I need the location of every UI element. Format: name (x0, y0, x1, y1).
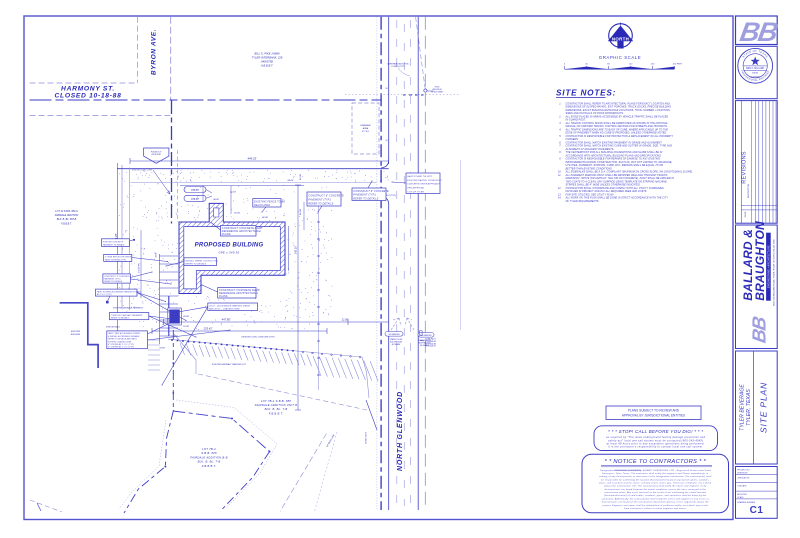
svg-text:UTILITIES, PAVEMENT, STRIPING,: UTILITIES, PAVEMENT, STRIPING, CURB, ETC… (566, 164, 664, 167)
svg-text:ALL WORK ON THIS PLAN SHALL BE: ALL WORK ON THIS PLAN SHALL BE DONE IN S… (565, 197, 669, 200)
svg-text:66.00′: 66.00′ (288, 180, 294, 182)
svg-text:FOR SITE UTILITIES, SEE UTILIT: FOR SITE UTILITIES, SEE UTILITY PLAN. (566, 193, 615, 196)
svg-text:CONTRACTOR SHALL MATCH EXISTIN: CONTRACTOR SHALL MATCH EXISTING PAVEMENT… (566, 141, 663, 144)
svg-text:16.00′: 16.00′ (234, 213, 240, 215)
svg-text:976.88′: 976.88′ (191, 189, 199, 192)
svg-text:CONTRACTOR SHALL REFER TO ARCH: CONTRACTOR SHALL REFER TO ARCHITECTURAL … (566, 102, 671, 105)
svg-text:11.: 11. (558, 174, 561, 177)
svg-text:CONSTRUCT 6″ CONCRETE: CONSTRUCT 6″ CONCRETE (104, 276, 130, 278)
svg-text:CONSTRUCT 6″ CONCRETE: CONSTRUCT 6″ CONCRETE (308, 194, 344, 197)
svg-text:CONTRACTOR IS RESPONSIBLE FOR: CONTRACTOR IS RESPONSIBLE FOR PROTECTION… (566, 135, 674, 138)
svg-text:REFER TO DETAILS: REFER TO DETAILS (308, 203, 333, 206)
svg-text:3.: 3. (559, 122, 561, 125)
svg-text:PLANS: PLANS (219, 295, 228, 298)
svg-text:REFER TO DETAILS: REFER TO DETAILS (353, 197, 378, 200)
svg-text:REFERENCE ARCHITECTURAL: REFERENCE ARCHITECTURAL (219, 292, 259, 295)
svg-text:IN GUARD POST.: IN GUARD POST. (566, 119, 587, 122)
svg-text:TYLER BEVERAGE: TYLER BEVERAGE (740, 384, 746, 431)
svg-text:BYRON AVE.: BYRON AVE. (151, 29, 158, 75)
svg-text:14.: 14. (558, 197, 562, 200)
svg-text:FL 8″=530.11: FL 8″=530.11 (425, 346, 436, 348)
svg-text:CONSTRUCT CONCRETE RAMP: CONSTRUCT CONCRETE RAMP (222, 227, 263, 230)
svg-text:CITY OF TYLER: CITY OF TYLER (407, 191, 424, 193)
svg-text:STRIPES SHALL BE 4″ WIDE UNLES: STRIPES SHALL BE 4″ WIDE UNLESS OTHERWIS… (566, 184, 641, 187)
svg-text:15.08′: 15.08′ (183, 326, 189, 328)
svg-text:ACCORDANCE WITH ARCHITECTURAL: ACCORDANCE WITH ARCHITECTURAL BUILDING P… (565, 154, 662, 157)
svg-text:INVOLVED IN PROJECT AND PAY AL: INVOLVED IN PROJECT AND PAY ALL REQUIRED… (566, 190, 648, 193)
svg-text:BB: BB (749, 315, 770, 345)
svg-text:HARMONY ST.: HARMONY ST. (61, 85, 115, 92)
svg-text:MARKINGS″, WHITE (OR ASPHALT,: MARKINGS″, WHITE (OR ASPHALT, YELLOW ON … (566, 177, 675, 180)
svg-text:ALIGNMENT AT ADJACENT PAVEMENT: ALIGNMENT AT ADJACENT PAVEMENTS. (565, 148, 615, 151)
svg-text:CLOSED 10-18-88: CLOSED 10-18-88 (55, 93, 122, 100)
svg-text:it is the contractor's respons: it is the contractor's responsibility to… (608, 446, 703, 449)
svg-text:10.: 10. (558, 171, 562, 174)
svg-text:BLK. B, BL. 883-B: BLK. B, BL. 883-B (57, 218, 77, 221)
svg-text:TWO COATS TO A CLEAN, DRY SURF: TWO COATS TO A CLEAN, DRY SURFACE USING … (566, 180, 668, 183)
svg-text:ALL SIGNS PLACED IN AREAS ACCE: ALL SIGNS PLACED IN AREAS ACCESSIBLE BY … (565, 115, 669, 118)
svg-text:DESIGN BY: DESIGN BY (737, 473, 748, 475)
svg-text:PROPOSED BUILDING: PROPOSED BUILDING (195, 243, 264, 249)
svg-text:EXISTING CONC CURB: EXISTING CONC CURB (132, 169, 153, 171)
svg-text:APPROVAL BY JURISDICTIONAL ENT: APPROVAL BY JURISDICTIONAL ENTITIES (622, 413, 685, 417)
svg-text:9.00′ (TYP.): 9.00′ (TYP.) (139, 263, 141, 273)
svg-text:IMPROVEMENTS DURING CONSTRUCTI: IMPROVEMENTS DURING CONSTRUCTION, SUCH A… (566, 161, 673, 164)
svg-text:PLANS: PLANS (222, 233, 231, 236)
svg-text:ENGINEERING • ARCHITECTURE: ENGINEERING • ARCHITECTURE (768, 245, 771, 288)
svg-text:4.: 4. (559, 128, 561, 131)
svg-text:SITE NOTES:: SITE NOTES: (556, 89, 616, 98)
svg-text:17.18′: 17.18′ (230, 192, 236, 194)
svg-text:PAVEMENT (TYP.): PAVEMENT (TYP.) (353, 194, 376, 197)
svg-text:36.00′: 36.00′ (213, 199, 219, 201)
svg-text:REVISIONS: REVISIONS (742, 151, 748, 184)
svg-text:CONTRACTOR SHALL MATCH EXISTIN: CONTRACTOR SHALL MATCH EXISTING CURB AND… (566, 145, 673, 148)
svg-text:ALL TRAFFIC DIMENSIONS ARE TO: ALL TRAFFIC DIMENSIONS ARE TO BACK OF CU… (565, 128, 669, 131)
svg-text:976.88′: 976.88′ (191, 198, 199, 201)
svg-text:REFERENCE ARCHITECTURAL: REFERENCE ARCHITECTURAL (222, 230, 262, 233)
svg-text:TYLER, TEXAS: TYLER, TEXAS (746, 389, 752, 426)
svg-text:CONTRACTOR SHALL COORDINATE AN: CONTRACTOR SHALL COORDINATE AND COMPLY W… (566, 187, 664, 190)
svg-text:FOUND 1/2″: FOUND 1/2″ (151, 152, 162, 154)
svg-text:SITE PLAN: SITE PLAN (759, 382, 769, 433)
svg-text:IRON ROD: IRON ROD (151, 154, 161, 156)
svg-text:22.00′: 22.00′ (341, 318, 349, 321)
svg-text:OF TYLER REQUIREMENTS.: OF TYLER REQUIREMENTS. (566, 200, 600, 203)
svg-text:9.: 9. (559, 158, 561, 161)
svg-text:PLANS SUBJECT TO REVIEW AND: PLANS SUBJECT TO REVIEW AND (628, 408, 680, 412)
svg-text:SIZES AND OUTFALLS OF ROOF DOW: SIZES AND OUTFALLS OF ROOF DOWNSPOUTS. (566, 112, 625, 115)
svg-text:DESCRIPTION: DESCRIPTION (748, 183, 750, 198)
svg-text:* * NOTICE TO CONTRACTO: * * NOTICE TO CONTRACTORS * * (604, 459, 706, 465)
svg-text:CURB INLET: CURB INLET (366, 431, 368, 444)
svg-text:BETTER THAN EXISTING CONDITION: BETTER THAN EXISTING CONDITIONS. (566, 167, 613, 170)
svg-text:BUILDING: BUILDING (71, 334, 81, 336)
svg-text:5.: 5. (559, 135, 561, 138)
svg-text:BRAUGHTON: BRAUGHTON (753, 221, 767, 301)
svg-text:MANUAL ON UNIFORM TRAFFIC CONT: MANUAL ON UNIFORM TRAFFIC CONTROL DEVICE… (566, 125, 668, 128)
svg-text:2″ WIDE REFLECTIVE WHITE: 2″ WIDE REFLECTIVE WHITE (104, 257, 132, 259)
svg-text:13.: 13. (558, 193, 562, 196)
svg-text:FAIRDALE ADDITION: FAIRDALE ADDITION (55, 214, 79, 217)
svg-text:POLE: POLE (435, 87, 441, 89)
svg-text:RELOCATED: RELOCATED (254, 204, 270, 207)
svg-text:79.58′: 79.58′ (159, 348, 165, 350)
svg-text:CORNERS.: CORNERS. (566, 138, 579, 141)
svg-text:CURB INLET: CURB INLET (425, 339, 437, 341)
svg-text:PAVEMENT (TYP.): PAVEMENT (TYP.) (308, 199, 331, 202)
svg-text:6.: 6. (559, 141, 561, 144)
svg-text:7.: 7. (559, 145, 561, 148)
svg-text:safety act″ local one call sys: safety act″ local one call system must b… (608, 439, 703, 442)
svg-text:PROJECT NO.: PROJECT NO. (737, 469, 750, 471)
svg-text:EXISTING: EXISTING (71, 331, 81, 333)
svg-text:CHECKED BY: CHECKED BY (737, 477, 750, 479)
svg-text:* * * STOP! CALL BEFORE: * * * STOP! CALL BEFORE YOU DIG! * * * (608, 429, 703, 434)
svg-text:THE CENTERPOINT FOR ALL BUILDI: THE CENTERPOINT FOR ALL BUILDING FOUNDAT… (566, 151, 663, 154)
svg-text:8.: 8. (559, 151, 561, 154)
svg-text:CONSTRUCT CONCRETE RAMP: CONSTRUCT CONCRETE RAMP (219, 289, 260, 292)
svg-text:GRAPHIC SCALE: GRAPHIC SCALE (599, 55, 642, 60)
svg-text:DIMENSIONS OF SLOPED PAVING, E: DIMENSIONS OF SLOPED PAVING, EXIT PORCHE… (566, 106, 672, 109)
svg-text:ALL SIDEWALKS SHALL BE A.D.A.: ALL SIDEWALKS SHALL BE A.D.A. COMPLIANT … (565, 171, 694, 174)
svg-text:as required by ″The texas unde: as required by ″The texas underground fa… (606, 436, 706, 439)
svg-text:CONSTRUCT 6″ CONCRETE: CONSTRUCT 6″ CONCRETE (353, 190, 389, 193)
svg-text:ALL PAVEMENT MARKING PAINT SHA: ALL PAVEMENT MARKING PAINT SHALL BE DROP… (565, 174, 668, 177)
svg-text:F.B.B.B.T.: F.B.B.B.T. (61, 222, 72, 225)
svg-text:EDGE OF PAVEMENT WHEN NO CURB: EDGE OF PAVEMENT WHEN NO CURB IS PROPOSE… (566, 132, 668, 135)
svg-text:W/ GUY WIRE: W/ GUY WIRE (431, 91, 444, 93)
svg-text:ALL TRAFFIC CONTROL SIGNS SHAL: ALL TRAFFIC CONTROL SIGNS SHALL BE FABRI… (565, 122, 669, 125)
svg-text:LICENSED: LICENSED (750, 77, 761, 79)
svg-text:at least 48 hours prior to any: at least 48 hours prior to any excavatio… (607, 443, 705, 446)
svg-text:NORTH: NORTH (612, 36, 629, 41)
svg-text:200 FEET: 200 FEET (673, 64, 684, 66)
svg-text:NORTH GLENWOOD: NORTH GLENWOOD (397, 391, 404, 471)
svg-text:EXISTING CONCRETE: EXISTING CONCRETE (103, 241, 124, 243)
svg-text:1.: 1. (559, 102, 561, 105)
svg-text:LOT 12 S.B.B. 889-A: LOT 12 S.B.B. 889-A (55, 210, 78, 213)
svg-text:EXISTING FENCE TO BE: EXISTING FENCE TO BE (254, 200, 285, 203)
svg-text:SOUTHBOUND: SOUTHBOUND (390, 342, 403, 344)
svg-text:EXISTING CONC CURB LINE (TYP.): EXISTING CONC CURB LINE (TYP.) (241, 337, 274, 339)
svg-text:BB: BB (738, 16, 780, 47)
svg-text:CONTRACTOR IS RESPONSIBLE FOR: CONTRACTOR IS RESPONSIBLE FOR REPAIRS OF… (566, 158, 661, 161)
svg-text:449.33′: 449.33′ (247, 156, 257, 160)
svg-text:29.08′: 29.08′ (182, 316, 189, 318)
svg-text:84034: 84034 (752, 73, 759, 75)
svg-text:C1: C1 (750, 505, 764, 516)
svg-text:12.: 12. (558, 187, 562, 190)
svg-text:DIMENSIONS, EXACT BUILDING ENT: DIMENSIONS, EXACT BUILDING ENTRANCE LOCA… (566, 109, 671, 112)
svg-text:577 S.F.: 577 S.F. (362, 131, 370, 133)
